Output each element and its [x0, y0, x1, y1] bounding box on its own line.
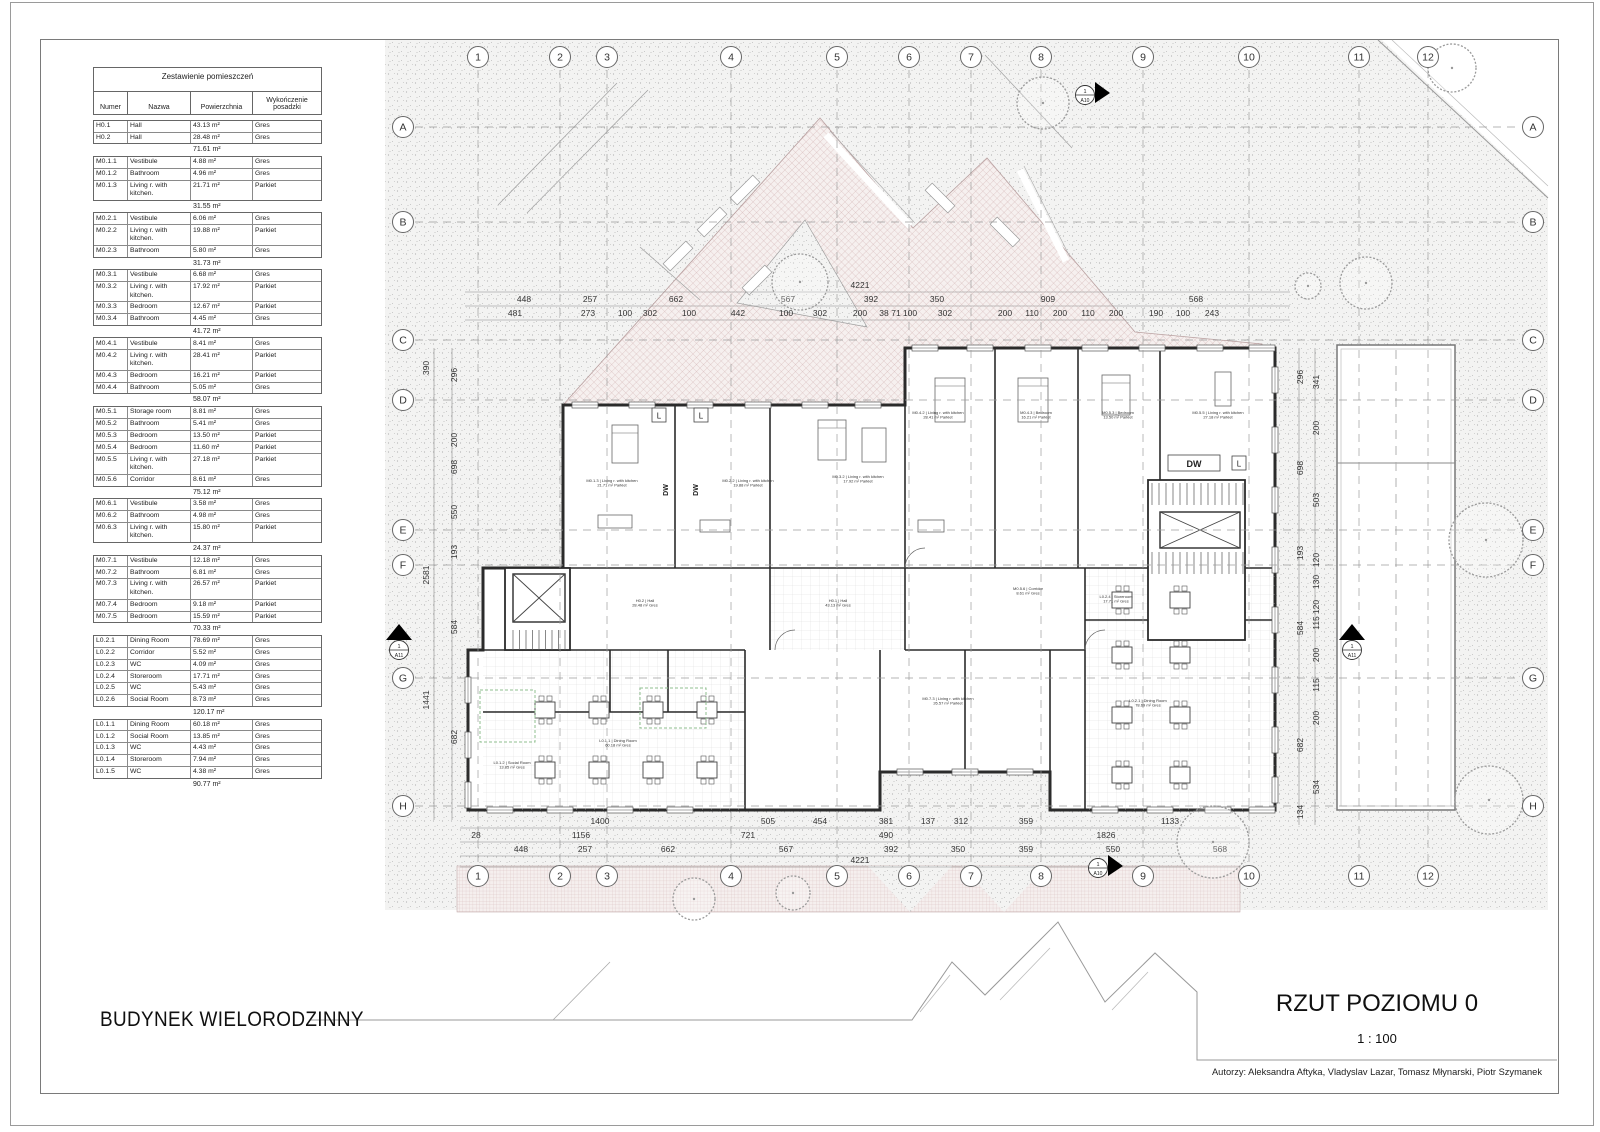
grid-bubble: G [1523, 668, 1544, 689]
table-cell: L0.1.4 [94, 755, 128, 766]
table-cell: Gres [253, 338, 321, 349]
table-cell: M0.5.6 [94, 475, 128, 486]
table-cell: Gres [253, 475, 321, 486]
dimension-label: 381 [879, 816, 893, 826]
table-row: L0.2.4Storeroom17.71 m²Gres [94, 670, 321, 682]
table-cell: WC [128, 743, 191, 754]
dimension-label: 534 [1311, 780, 1321, 794]
dimension-label: 909 [1041, 294, 1055, 304]
table-cell: L0.2.3 [94, 660, 128, 671]
dimension-label: 682 [1295, 738, 1305, 752]
schedule-group: M0.6.1Vestibule3.58 m²GresM0.6.2Bathroom… [93, 498, 322, 543]
table-row: M0.2.2Living r. with kitchen.19.88 m²Par… [94, 224, 321, 244]
dimension-label: 243 [1205, 308, 1219, 318]
room-schedule: Zestawienie pomieszczeń Numer Nazwa Powi… [93, 67, 322, 790]
group-subtotal: 120.17 m² [93, 707, 322, 719]
svg-text:8: 8 [1038, 52, 1044, 64]
table-cell: L0.1.5 [94, 767, 128, 778]
svg-text:1: 1 [1083, 89, 1086, 95]
svg-text:1: 1 [475, 871, 481, 883]
grid-bubble: F [393, 555, 414, 576]
dimension-label: 28 [471, 830, 481, 840]
tree-icon [1295, 273, 1321, 299]
table-cell: 4.98 m² [191, 511, 253, 522]
group-subtotal: 24.37 m² [93, 543, 322, 555]
tree-icon [673, 878, 715, 920]
dimension-label: 392 [884, 844, 898, 854]
schedule-group: M0.4.1Vestibule8.41 m²GresM0.4.2Living r… [93, 337, 322, 394]
table-row: L0.1.2Social Room13.85 m²Gres [94, 730, 321, 742]
svg-text:G: G [1529, 673, 1537, 685]
table-row: M0.2.1Vestibule6.06 m²Gres [94, 213, 321, 224]
table-cell: L0.2.2 [94, 648, 128, 659]
svg-text:1: 1 [397, 644, 400, 650]
col-numer: Numer [94, 92, 128, 114]
tree-icon [1340, 257, 1392, 309]
table-row: L0.2.1Dining Room78.69 m²Gres [94, 636, 321, 647]
table-cell: M0.3.4 [94, 314, 128, 325]
table-row: M0.7.1Vestibule12.18 m²Gres [94, 556, 321, 567]
table-cell: M0.4.4 [94, 383, 128, 394]
grid-bubble: G [393, 668, 414, 689]
table-cell: 9.18 m² [191, 600, 253, 611]
table-cell: 4.43 m² [191, 743, 253, 754]
grid-bubble: D [1523, 390, 1544, 411]
table-cell: 13.85 m² [191, 731, 253, 742]
table-cell: 26.57 m² [191, 579, 253, 598]
room-label: H0.2 | Hall28.48 m² Gres [632, 598, 658, 608]
table-cell: Hall [128, 133, 191, 144]
table-cell: M0.5.5 [94, 454, 128, 473]
table-cell: Parkiet [253, 431, 321, 442]
table-row: M0.7.5Bedroom15.59 m²Parkiet [94, 611, 321, 623]
dimension-label: 193 [449, 545, 459, 559]
table-cell: Gres [253, 213, 321, 224]
table-cell: Gres [253, 169, 321, 180]
dimension-label: 312 [954, 816, 968, 826]
table-cell: Gres [253, 636, 321, 647]
dimension-label: 662 [669, 294, 683, 304]
project-title: BUDYNEK WIELORODZINNY [100, 1007, 364, 1032]
svg-text:9: 9 [1140, 52, 1146, 64]
authors-line: Autorzy: Aleksandra Aftyka, Vladyslav La… [1200, 1067, 1554, 1077]
table-cell: Living r. with kitchen. [128, 225, 191, 244]
svg-text:10: 10 [1243, 52, 1255, 64]
svg-text:11: 11 [1354, 52, 1365, 64]
grid-bubble: A [393, 117, 414, 138]
table-cell: 12.18 m² [191, 556, 253, 567]
table-cell: 13.50 m² [191, 431, 253, 442]
dimension-label: 721 [741, 830, 755, 840]
table-cell: Parkiet [253, 612, 321, 623]
group-subtotal: 31.73 m² [93, 258, 322, 270]
table-cell: Parkiet [253, 181, 321, 200]
fridge-label: L [699, 412, 704, 421]
tree-icon [1449, 503, 1523, 577]
table-cell: 21.71 m² [191, 181, 253, 200]
table-cell: Social Room [128, 731, 191, 742]
table-cell: M0.2.2 [94, 225, 128, 244]
dimension-label: 200 [1311, 421, 1321, 435]
svg-text:A: A [399, 122, 406, 134]
group-subtotal: 90.77 m² [93, 779, 322, 791]
table-cell: Living r. with kitchen. [128, 350, 191, 369]
table-cell: WC [128, 683, 191, 694]
table-cell: 5.52 m² [191, 648, 253, 659]
table-cell: Gres [253, 755, 321, 766]
table-cell: 5.80 m² [191, 246, 253, 257]
table-cell: 3.58 m² [191, 499, 253, 510]
grid-bubble: 4 [721, 47, 742, 68]
svg-text:12: 12 [1422, 871, 1434, 883]
grid-bubble: F [1523, 555, 1544, 576]
group-subtotal: 75.12 m² [93, 487, 322, 499]
dimension-label: 568 [1189, 294, 1203, 304]
grid-bubble: 10 [1239, 47, 1260, 68]
table-cell: Gres [253, 648, 321, 659]
table-cell: Gres [253, 383, 321, 394]
table-cell: H0.2 [94, 133, 128, 144]
table-row: L0.2.2Corridor5.52 m²Gres [94, 647, 321, 659]
fridge-label: L [657, 412, 662, 421]
table-cell: 19.88 m² [191, 225, 253, 244]
grid-bubble: 11 [1349, 866, 1370, 887]
svg-text:F: F [1530, 560, 1536, 572]
dimension-label: 359 [1019, 844, 1033, 854]
table-cell: 4.96 m² [191, 169, 253, 180]
grid-bubble: 2 [550, 866, 571, 887]
table-cell: 4.38 m² [191, 767, 253, 778]
dimension-label: 1156 [572, 830, 591, 840]
dimension-label: 257 [583, 294, 597, 304]
table-row: M0.6.3Living r. with kitchen.15.80 m²Par… [94, 522, 321, 542]
grid-bubble: B [393, 212, 414, 233]
svg-text:11: 11 [1354, 871, 1365, 883]
svg-text:1: 1 [1350, 644, 1353, 650]
table-row: M0.1.1Vestibule4.88 m²Gres [94, 157, 321, 168]
dimension-label: 38 [879, 308, 889, 318]
table-cell: 78.69 m² [191, 636, 253, 647]
table-row: M0.3.4Bathroom4.45 m²Gres [94, 313, 321, 325]
table-row: L0.2.3WC4.09 m²Gres [94, 659, 321, 671]
dimension-label: 100 [618, 308, 632, 318]
table-cell: M0.7.2 [94, 567, 128, 578]
table-row: L0.1.3WC4.43 m²Gres [94, 742, 321, 754]
schedule-group: L0.1.1Dining Room60.18 m²GresL0.1.2Socia… [93, 719, 322, 779]
table-cell: Bathroom [128, 567, 191, 578]
dimension-label: 110 [1081, 308, 1095, 318]
table-cell: 43.13 m² [191, 121, 253, 132]
table-cell: M0.4.1 [94, 338, 128, 349]
table-cell: H0.1 [94, 121, 128, 132]
grid-bubble: 12 [1418, 47, 1439, 68]
table-cell: 8.81 m² [191, 407, 253, 418]
table-cell: 6.68 m² [191, 270, 253, 281]
dimension-label: 115 [1311, 616, 1321, 630]
table-cell: 6.06 m² [191, 213, 253, 224]
table-cell: 27.18 m² [191, 454, 253, 473]
dimension-label: 584 [449, 620, 459, 634]
table-cell: 15.80 m² [191, 523, 253, 542]
table-cell: Bedroom [128, 431, 191, 442]
dimension-label: 567 [779, 844, 793, 854]
table-cell: Social Room [128, 695, 191, 706]
dishwasher-label: DW [663, 484, 670, 496]
table-cell: M0.1.2 [94, 169, 128, 180]
dimension-label: 448 [514, 844, 528, 854]
svg-text:9: 9 [1140, 871, 1146, 883]
grid-bubble: 10 [1239, 866, 1260, 887]
table-cell: Parkiet [253, 442, 321, 453]
table-cell: Gres [253, 133, 321, 144]
table-cell: Gres [253, 743, 321, 754]
svg-text:B: B [399, 217, 406, 229]
svg-text:F: F [400, 560, 406, 572]
dimension-label: 100 [779, 308, 793, 318]
dimension-label: 273 [581, 308, 595, 318]
table-cell: Gres [253, 121, 321, 132]
table-cell: L0.1.3 [94, 743, 128, 754]
table-cell: Gres [253, 419, 321, 430]
grid-bubble: 7 [961, 866, 982, 887]
table-row: M0.4.2Living r. with kitchen.28.41 m²Par… [94, 349, 321, 369]
dimension-label: 505 [761, 816, 775, 826]
table-cell: 60.18 m² [191, 720, 253, 731]
table-row: M0.2.3Bathroom5.80 m²Gres [94, 245, 321, 257]
group-subtotal: 41.72 m² [93, 326, 322, 338]
schedule-group: M0.5.1Storage room8.81 m²GresM0.5.2Bathr… [93, 406, 322, 487]
table-cell: Parkiet [253, 225, 321, 244]
table-row: M0.4.1Vestibule8.41 m²Gres [94, 338, 321, 349]
grid-bubble: 8 [1031, 47, 1052, 68]
table-cell: Bathroom [128, 511, 191, 522]
table-cell: Gres [253, 499, 321, 510]
table-cell: 8.41 m² [191, 338, 253, 349]
dimension-label: 190 [1149, 308, 1163, 318]
table-row: L0.1.1Dining Room60.18 m²Gres [94, 720, 321, 731]
svg-text:H: H [1529, 801, 1537, 813]
svg-text:G: G [399, 673, 407, 685]
dimension-label: 392 [864, 294, 878, 304]
table-row: L0.2.5WC5.43 m²Gres [94, 682, 321, 694]
dimension-label: 550 [1106, 844, 1120, 854]
grid-bubble: 11 [1349, 47, 1370, 68]
table-cell: M0.3.2 [94, 282, 128, 301]
table-cell: Gres [253, 246, 321, 257]
table-cell: M0.4.3 [94, 371, 128, 382]
dimension-label: 584 [1295, 621, 1305, 635]
room-label: M0.4.3 | Bedroom16.21 m² Parkiet [1020, 410, 1052, 420]
svg-text:3: 3 [604, 871, 610, 883]
svg-text:6: 6 [906, 871, 912, 883]
grid-bubble: E [1523, 520, 1544, 541]
table-cell: Vestibule [128, 499, 191, 510]
table-row: M0.4.4Bathroom5.05 m²Gres [94, 382, 321, 394]
dimension-label: 120 [1311, 553, 1321, 567]
table-cell: M0.7.5 [94, 612, 128, 623]
table-cell: M0.6.1 [94, 499, 128, 510]
table-row: H0.1Hall43.13 m²Gres [94, 121, 321, 132]
schedule-group: H0.1Hall43.13 m²GresH0.2Hall28.48 m²Gres [93, 120, 322, 145]
grid-bubble: 7 [961, 47, 982, 68]
table-cell: M0.1.1 [94, 157, 128, 168]
table-cell: M0.5.4 [94, 442, 128, 453]
dimension-label: 200 [1311, 648, 1321, 662]
dimension-label: 200 [449, 433, 459, 447]
table-row: M0.5.5Living r. with kitchen.27.18 m²Par… [94, 453, 321, 473]
dimension-label: 350 [951, 844, 965, 854]
table-cell: 16.21 m² [191, 371, 253, 382]
dimension-label: 193 [1295, 546, 1305, 560]
building-plan [465, 345, 1278, 813]
table-cell: Living r. with kitchen. [128, 523, 191, 542]
table-cell: Bedroom [128, 302, 191, 313]
svg-text:E: E [1529, 525, 1536, 537]
dimension-label: 120 [1311, 600, 1321, 614]
table-cell: L0.2.4 [94, 671, 128, 682]
svg-text:5: 5 [834, 52, 840, 64]
dimension-label: 4221 [851, 280, 870, 290]
table-cell: WC [128, 660, 191, 671]
schedule-group: M0.2.1Vestibule6.06 m²GresM0.2.2Living r… [93, 212, 322, 257]
grid-bubble: 3 [597, 47, 618, 68]
table-cell: Corridor [128, 648, 191, 659]
dimension-label: 359 [1019, 816, 1033, 826]
table-row: M0.4.3Bedroom16.21 m²Parkiet [94, 370, 321, 382]
table-cell: Parkiet [253, 371, 321, 382]
col-wykonczenie: Wykończenie posadzki [253, 92, 321, 114]
dimension-label: 341 [1311, 375, 1321, 389]
table-cell: Gres [253, 270, 321, 281]
grid-bubble: 6 [899, 47, 920, 68]
dimension-label: 1133 [1161, 816, 1180, 826]
table-cell: 4.09 m² [191, 660, 253, 671]
table-cell: L0.2.1 [94, 636, 128, 647]
table-cell: Gres [253, 407, 321, 418]
group-subtotal: 31.55 m² [93, 201, 322, 213]
table-cell: Storeroom [128, 755, 191, 766]
table-cell: WC [128, 767, 191, 778]
table-cell: Gres [253, 556, 321, 567]
svg-text:2: 2 [557, 52, 563, 64]
table-cell: Hall [128, 121, 191, 132]
tree-icon [1177, 806, 1249, 878]
tree-icon [1017, 77, 1069, 129]
room-label: M0.5.6 | Corridor8.61 m² Gres [1013, 586, 1044, 596]
dimension-label: 100 [682, 308, 696, 318]
grid-bubble: 4 [721, 866, 742, 887]
table-cell: M0.5.2 [94, 419, 128, 430]
svg-text:7: 7 [968, 871, 974, 883]
table-cell: Bedroom [128, 612, 191, 623]
svg-text:D: D [1529, 395, 1537, 407]
table-cell: Vestibule [128, 270, 191, 281]
dimension-label: 302 [643, 308, 657, 318]
table-row: H0.2Hall28.48 m²Gres [94, 132, 321, 144]
table-cell: Bathroom [128, 246, 191, 257]
table-cell: 15.59 m² [191, 612, 253, 623]
dimension-label: 200 [1053, 308, 1067, 318]
table-row: M0.1.2Bathroom4.96 m²Gres [94, 168, 321, 180]
table-cell: 28.41 m² [191, 350, 253, 369]
grid-bubble: D [393, 390, 414, 411]
table-cell: M0.4.2 [94, 350, 128, 369]
dimension-label: 390 [421, 361, 431, 375]
svg-text:5: 5 [834, 871, 840, 883]
group-subtotal: 58.07 m² [93, 394, 322, 406]
table-row: L0.1.4Storeroom7.94 m²Gres [94, 754, 321, 766]
dimension-label: 71 [891, 308, 901, 318]
grid-bubble: 6 [899, 866, 920, 887]
grid-bubble: H [1523, 796, 1544, 817]
dimension-label: 115 [1311, 678, 1321, 692]
table-cell: Vestibule [128, 213, 191, 224]
table-cell: M0.2.1 [94, 213, 128, 224]
room-label: L0.2.4 | Storeroom17.71 m² Gres [1099, 594, 1133, 604]
table-cell: M0.3.3 [94, 302, 128, 313]
table-row: M0.1.3Living r. with kitchen.21.71 m²Par… [94, 180, 321, 200]
table-row: M0.7.3Living r. with kitchen.26.57 m²Par… [94, 578, 321, 598]
dimension-label: 350 [930, 294, 944, 304]
svg-text:4: 4 [728, 871, 734, 883]
grid-bubble: C [1523, 330, 1544, 351]
table-row: M0.5.3Bedroom13.50 m²Parkiet [94, 430, 321, 442]
dimension-label: 137 [921, 816, 935, 826]
table-cell: 17.71 m² [191, 671, 253, 682]
table-cell: Gres [253, 720, 321, 731]
table-cell: Living r. with kitchen. [128, 282, 191, 301]
table-row: M0.5.6Corridor8.61 m²Gres [94, 474, 321, 486]
grid-bubble: A [1523, 117, 1544, 138]
table-row: M0.6.1Vestibule3.58 m²Gres [94, 499, 321, 510]
schedule-group: L0.2.1Dining Room78.69 m²GresL0.2.2Corri… [93, 635, 322, 707]
room-label: H0.1 | Hall43.13 m² Gres [825, 598, 851, 608]
grid-bubble: H [393, 796, 414, 817]
table-cell: Bedroom [128, 442, 191, 453]
grid-bubble: 2 [550, 47, 571, 68]
grid-bubble: 12 [1418, 866, 1439, 887]
grid-bubble: C [393, 330, 414, 351]
svg-text:4: 4 [728, 52, 734, 64]
dimension-label: 1400 [591, 816, 610, 826]
table-cell: M0.7.1 [94, 556, 128, 567]
table-cell: 8.73 m² [191, 695, 253, 706]
table-cell: Bathroom [128, 314, 191, 325]
schedule-columns: Numer Nazwa Powierzchnia Wykończenie pos… [94, 92, 321, 114]
dimension-label: 698 [449, 460, 459, 474]
table-cell: Parkiet [253, 282, 321, 301]
table-cell: Gres [253, 767, 321, 778]
dimension-label: 257 [578, 844, 592, 854]
dimension-label: 448 [517, 294, 531, 304]
table-cell: 8.61 m² [191, 475, 253, 486]
table-cell: Corridor [128, 475, 191, 486]
grid-bubble: 3 [597, 866, 618, 887]
schedule-group: M0.1.1Vestibule4.88 m²GresM0.1.2Bathroom… [93, 156, 322, 201]
svg-text:3: 3 [604, 52, 610, 64]
table-cell: M0.7.4 [94, 600, 128, 611]
table-cell: Storeroom [128, 671, 191, 682]
table-cell: M0.3.1 [94, 270, 128, 281]
grid-bubble: 1 [468, 866, 489, 887]
dimension-label: 503 [1311, 493, 1321, 507]
schedule-groups: H0.1Hall43.13 m²GresH0.2Hall28.48 m²Gres… [93, 120, 322, 791]
dishwasher-label: DW [1187, 459, 1202, 469]
dimension-label: 698 [1295, 461, 1305, 475]
dimension-label: 302 [813, 308, 827, 318]
table-cell: Parkiet [253, 350, 321, 369]
table-cell: L0.2.5 [94, 683, 128, 694]
